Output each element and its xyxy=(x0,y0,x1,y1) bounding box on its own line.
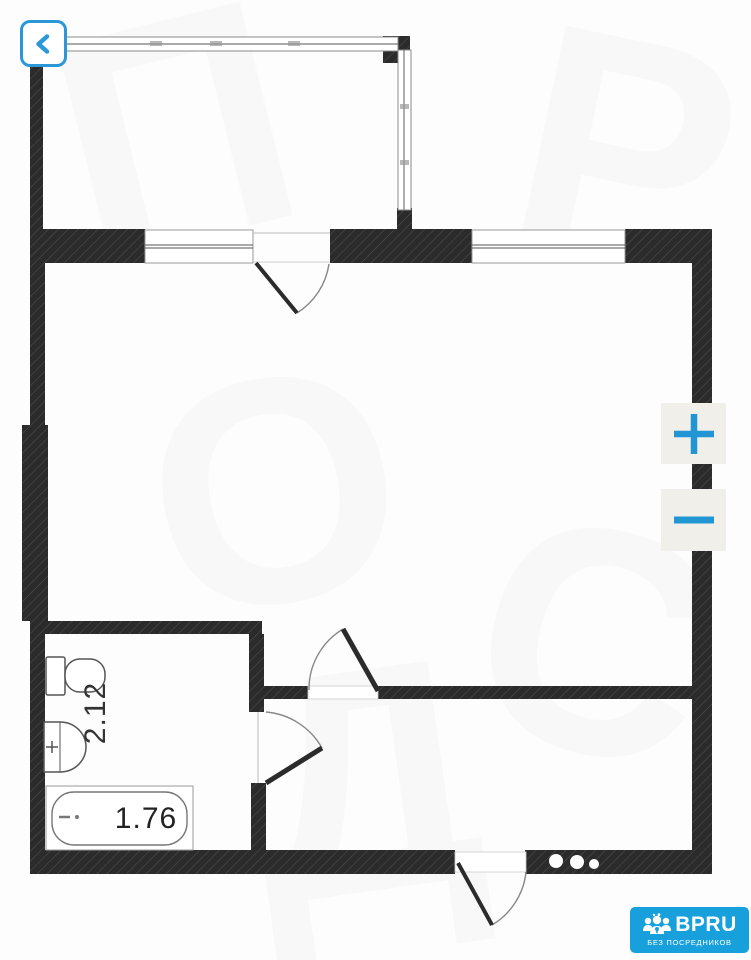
walls xyxy=(22,36,712,874)
window-right xyxy=(472,230,625,263)
brand-badge[interactable]: BPRU БЕЗ ПОСРЕДНИКОВ xyxy=(630,907,749,953)
brand-name: BPRU xyxy=(675,914,737,936)
plus-icon xyxy=(670,410,718,458)
floorplan-viewer: П Р О С Д xyxy=(0,0,751,960)
minus-icon xyxy=(670,496,718,544)
back-button[interactable] xyxy=(20,20,67,67)
dimension-label-bathtub: 1.76 xyxy=(108,802,184,836)
people-group-icon xyxy=(642,913,672,937)
brand-tagline: БЕЗ ПОСРЕДНИКОВ xyxy=(647,938,732,947)
zoom-in-button[interactable] xyxy=(661,403,726,464)
balcony-glazing xyxy=(42,37,411,210)
bathroom-door xyxy=(258,712,322,783)
window-left xyxy=(145,230,253,263)
chevron-left-icon xyxy=(33,33,55,55)
zoom-out-button[interactable] xyxy=(661,489,726,551)
dimension-label-bathroom: 2.12 xyxy=(79,677,113,749)
room-door xyxy=(308,629,378,699)
entrance-door xyxy=(455,852,526,925)
brand-row: BPRU xyxy=(642,913,737,937)
balcony-door xyxy=(253,233,330,313)
